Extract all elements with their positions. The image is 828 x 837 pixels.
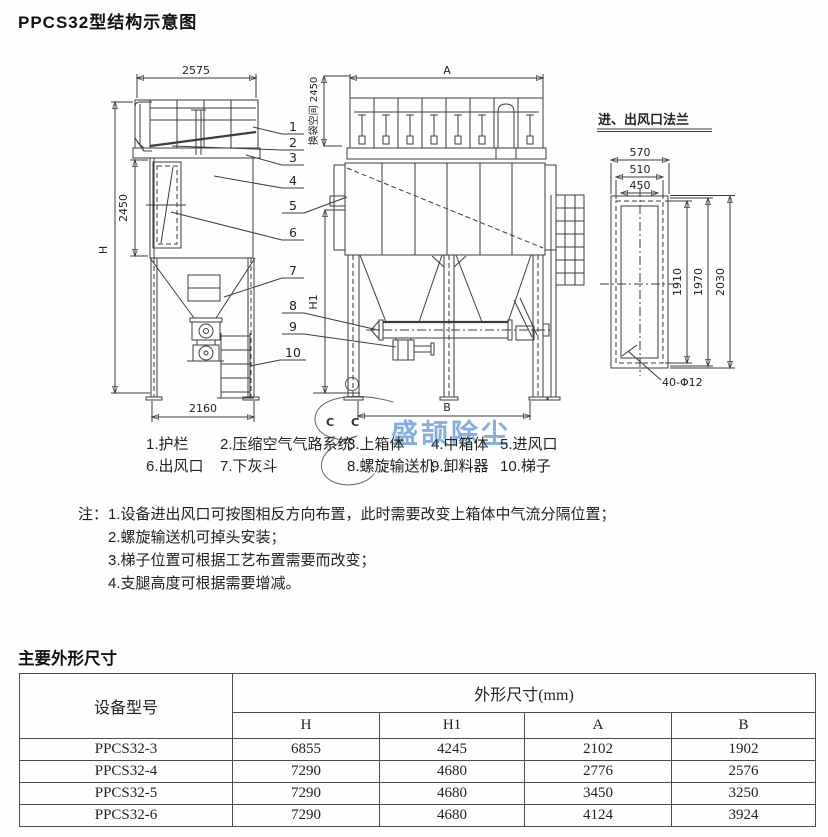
- column-header-model: 设备型号: [20, 674, 233, 739]
- cell-a: 3450: [525, 783, 672, 805]
- callout-8: 8: [289, 298, 297, 313]
- cell-h1: 4680: [380, 805, 525, 827]
- cell-b: 1902: [672, 739, 816, 761]
- legend-item: 4.中箱体: [431, 434, 500, 456]
- dim-570: 570: [630, 146, 651, 159]
- column-header-h: H: [233, 713, 380, 739]
- cell-a: 2102: [525, 739, 672, 761]
- table-row: PPCS32-6 7290 4680 4124 3924: [20, 805, 816, 827]
- cell-h: 7290: [233, 761, 380, 783]
- callout-3: 3: [289, 150, 297, 165]
- legend-item: 7.下灰斗: [220, 456, 347, 478]
- table-row: PPCS32-4 7290 4680 2776 2576: [20, 761, 816, 783]
- note-item-3: 3.梯子位置可根据工艺布置需要而改变；: [108, 549, 616, 572]
- parts-legend-row-1: 1.护栏 2.压缩空气气路系统 3.上箱体 4.中箱体 5.进风口: [146, 434, 558, 456]
- cell-h1: 4245: [380, 739, 525, 761]
- column-header-a: A: [525, 713, 672, 739]
- table-row: PPCS32-3 6855 4245 2102 1902: [20, 739, 816, 761]
- cell-h: 7290: [233, 805, 380, 827]
- dim-bag-space: 换袋空间 2450: [307, 77, 320, 146]
- callout-9: 9: [289, 319, 297, 334]
- side-view: 2575 2450 H: [97, 64, 360, 422]
- dim-2160: 2160: [189, 402, 217, 415]
- note-item-4: 4.支腿高度可根据需要增减。: [108, 572, 616, 595]
- callout-2: 2: [289, 135, 297, 150]
- legend-item: 8.螺旋输送机: [347, 456, 431, 478]
- section-title: 主要外形尺寸: [18, 645, 117, 669]
- document-page: { "page": { "title": "PPCS32型结构示意图", "se…: [0, 0, 828, 837]
- dimensions-table: 设备型号 外形尺寸(mm) H H1 A B PPCS32-3 6855 424…: [19, 673, 816, 827]
- legend-item: 9.卸料器: [431, 456, 500, 478]
- cell-model: PPCS32-6: [20, 805, 233, 827]
- cell-a: 4124: [525, 805, 672, 827]
- dim-a: A: [443, 64, 451, 77]
- flange-title: 进、出风口法兰: [598, 112, 689, 128]
- cell-b: 2576: [672, 761, 816, 783]
- dim-2030: 2030: [714, 268, 727, 296]
- structure-diagram: 2575 2450 H: [0, 60, 828, 440]
- dim-510: 510: [630, 163, 651, 176]
- cell-model: PPCS32-5: [20, 783, 233, 805]
- legend-item: 2.压缩空气气路系统: [220, 434, 347, 456]
- cell-b: 3924: [672, 805, 816, 827]
- cell-h: 6855: [233, 739, 380, 761]
- parts-legend: 1.护栏 2.压缩空气气路系统 3.上箱体 4.中箱体 5.进风口 6.出风口 …: [146, 434, 558, 478]
- cell-h1: 4680: [380, 783, 525, 805]
- dim-1910: 1910: [671, 268, 684, 296]
- dim-2575: 2575: [182, 64, 210, 77]
- front-view: A: [330, 64, 584, 420]
- cell-model: PPCS32-3: [20, 739, 233, 761]
- notes-block: 注： 1.设备进出风口可按图相反方向布置，此时需要改变上箱体中气流分隔位置； 2…: [78, 503, 616, 595]
- cell-model: PPCS32-4: [20, 761, 233, 783]
- note-item-1: 1.设备进出风口可按图相反方向布置，此时需要改变上箱体中气流分隔位置；: [108, 503, 616, 526]
- legend-item: 6.出风口: [146, 456, 220, 478]
- dim-h: H: [97, 246, 110, 254]
- cell-b: 3250: [672, 783, 816, 805]
- callout-4: 4: [289, 173, 297, 188]
- logo-letter-c1: C: [326, 416, 334, 429]
- logo-letter-c2: C: [351, 416, 359, 429]
- logo-red-dot: [346, 378, 359, 391]
- legend-item: 3.上箱体: [347, 434, 431, 456]
- cell-h: 7290: [233, 783, 380, 805]
- column-header-b: B: [672, 713, 816, 739]
- column-header-h1: H1: [380, 713, 525, 739]
- dim-h1: H1: [307, 294, 320, 309]
- legend-item: 1.护栏: [146, 434, 220, 456]
- column-header-dims: 外形尺寸(mm): [233, 674, 816, 713]
- cell-h1: 4680: [380, 761, 525, 783]
- parts-legend-row-2: 6.出风口 7.下灰斗 8.螺旋输送机 9.卸料器 10.梯子: [146, 456, 558, 478]
- notes-prefix: 注：: [78, 503, 108, 526]
- legend-item: 5.进风口: [500, 434, 558, 456]
- page-title: PPCS32型结构示意图: [18, 8, 197, 33]
- callout-1: 1: [289, 119, 297, 134]
- dim-1970: 1970: [692, 268, 705, 296]
- legend-item: 10.梯子: [500, 456, 551, 478]
- callout-5: 5: [289, 198, 297, 213]
- callout-7: 7: [289, 263, 297, 278]
- callout-10: 10: [285, 345, 301, 360]
- cell-a: 2776: [525, 761, 672, 783]
- flange-detail: 进、出风口法兰 570 510 450 1910 1970 2030 40-Φ1…: [597, 112, 735, 389]
- table-row: PPCS32-5 7290 4680 3450 3250: [20, 783, 816, 805]
- callout-6: 6: [289, 225, 297, 240]
- bolt-count-label: 40-Φ12: [662, 376, 703, 389]
- dim-2450: 2450: [117, 194, 130, 222]
- note-item-2: 2.螺旋输送机可掉头安装；: [108, 526, 616, 549]
